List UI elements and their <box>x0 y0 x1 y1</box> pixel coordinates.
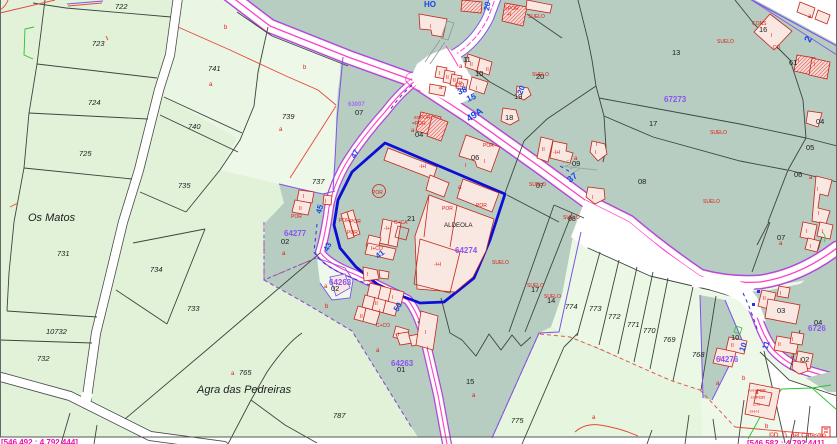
svg-text:SUELO: SUELO <box>717 39 734 45</box>
svg-text:SUELO: SUELO <box>528 14 545 20</box>
svg-text:725: 725 <box>79 149 92 158</box>
svg-text:C+CO: C+CO <box>376 323 390 329</box>
svg-text:I: I <box>303 194 304 200</box>
svg-text:I: I <box>325 199 326 205</box>
svg-text:I: I <box>595 150 596 156</box>
svg-text:02: 02 <box>281 237 289 246</box>
svg-text:765: 765 <box>239 368 252 377</box>
svg-text:POR: POR <box>291 214 302 220</box>
svg-text:64277: 64277 <box>284 229 307 238</box>
svg-text:I: I <box>596 142 597 148</box>
svg-text:POR: POR <box>476 203 487 209</box>
svg-text:SUELO: SUELO <box>527 283 544 289</box>
svg-text:737: 737 <box>312 177 325 186</box>
svg-text:61: 61 <box>789 58 797 67</box>
svg-text:HO: HO <box>424 0 436 9</box>
svg-text:63007: 63007 <box>348 102 365 108</box>
svg-text:[546.582 ; 4.792.441]: [546.582 ; 4.792.441] <box>747 439 824 444</box>
svg-text:I: I <box>398 332 399 338</box>
svg-text:04: 04 <box>415 130 423 139</box>
svg-text:64263: 64263 <box>391 359 414 368</box>
svg-text:21: 21 <box>407 214 415 223</box>
svg-text:I: I <box>392 295 393 301</box>
svg-text:-I+I: -I+I <box>553 150 560 156</box>
svg-text:POR: POR <box>339 218 350 224</box>
svg-text:Agra das Pedreiras: Agra das Pedreiras <box>196 384 292 396</box>
svg-text:67273: 67273 <box>664 95 687 104</box>
svg-text:SUELO: SUELO <box>703 199 720 205</box>
svg-text:772: 772 <box>608 312 621 321</box>
svg-text:05: 05 <box>806 143 814 152</box>
svg-text:C+I: C+I <box>753 402 760 407</box>
svg-text:I: I <box>425 330 426 336</box>
svg-text:II: II <box>299 206 302 212</box>
svg-text:-I+I: -I+I <box>419 164 426 170</box>
svg-text:+I+POR: +I+POR <box>750 395 765 400</box>
svg-text:CONS: CONS <box>752 21 767 27</box>
svg-text:II: II <box>486 67 489 73</box>
svg-text:724: 724 <box>88 98 101 107</box>
svg-text:I: I <box>818 211 819 217</box>
svg-text:+I: +I <box>507 12 511 18</box>
svg-text:03: 03 <box>777 306 785 315</box>
svg-text:II: II <box>542 147 545 153</box>
svg-text:Os Matos: Os Matos <box>28 212 76 224</box>
svg-text:I: I <box>792 337 793 343</box>
svg-text:731: 731 <box>57 249 70 258</box>
svg-text:I: I <box>822 229 823 235</box>
svg-text:740: 740 <box>188 122 201 131</box>
svg-text:06: 06 <box>471 153 479 162</box>
svg-text:I: I <box>476 86 477 92</box>
svg-text:II: II <box>763 296 766 302</box>
svg-text:I: I <box>814 62 815 68</box>
svg-text:POR: POR <box>483 143 494 149</box>
svg-text:II: II <box>360 314 363 320</box>
svg-text:I: I <box>817 187 818 193</box>
svg-text:10: 10 <box>731 333 739 342</box>
svg-text:I: I <box>379 309 380 315</box>
svg-text:I: I <box>771 33 772 39</box>
svg-text:734: 734 <box>150 265 163 274</box>
svg-text:I: I <box>367 272 368 278</box>
svg-text:739: 739 <box>282 112 295 121</box>
svg-text:II: II <box>375 301 378 307</box>
svg-text:I: I <box>780 291 781 297</box>
svg-text:SUELO: SUELO <box>563 215 580 221</box>
svg-text:II: II <box>731 343 734 349</box>
svg-text:II: II <box>446 75 449 81</box>
svg-text:04: 04 <box>816 117 824 126</box>
svg-text:C+CA: C+CA <box>394 220 408 226</box>
svg-text:©D. G. del Catastro: ©D. G. del Catastro <box>769 431 826 439</box>
svg-text:I: I <box>806 229 807 235</box>
svg-text:64276: 64276 <box>716 355 739 364</box>
svg-text:774: 774 <box>565 302 578 311</box>
svg-text:64274: 64274 <box>455 246 478 255</box>
svg-text:POR: POR <box>350 219 361 225</box>
svg-text:II: II <box>470 62 473 68</box>
svg-text:-CO: -CO <box>771 45 780 51</box>
svg-text:10732: 10732 <box>46 327 68 336</box>
svg-text:SUELO: SUELO <box>492 260 509 266</box>
svg-text:I: I <box>810 244 811 250</box>
svg-text:18: 18 <box>505 113 513 122</box>
svg-text:768: 768 <box>692 350 705 359</box>
svg-text:ALDEOLA: ALDEOLA <box>444 222 473 229</box>
svg-text:06: 06 <box>794 170 802 179</box>
svg-text:735: 735 <box>178 181 191 190</box>
svg-text:17: 17 <box>649 119 657 128</box>
svg-text:6726: 6726 <box>808 324 826 333</box>
svg-text:I: I <box>439 71 440 77</box>
svg-text:A+I+POR: A+I+POR <box>748 388 766 393</box>
svg-text:769: 769 <box>663 335 676 344</box>
svg-text:775: 775 <box>511 416 524 425</box>
svg-text:-I+I+I: -I+I+I <box>749 409 759 414</box>
svg-text:SUELO: SUELO <box>710 130 727 136</box>
svg-text:II: II <box>778 342 781 348</box>
svg-text:13: 13 <box>672 48 680 57</box>
svg-text:733: 733 <box>187 304 200 313</box>
svg-text:[546.492 ; 4.792.444]: [546.492 ; 4.792.444] <box>1 438 78 444</box>
svg-text:I: I <box>800 358 801 364</box>
svg-text:741: 741 <box>208 64 221 73</box>
svg-text:SUELO: SUELO <box>532 72 549 78</box>
svg-text:=POR: =POR <box>412 121 426 127</box>
svg-text:15: 15 <box>466 377 474 386</box>
svg-text:I: I <box>430 24 431 30</box>
svg-text:770: 770 <box>643 326 656 335</box>
svg-text:773: 773 <box>589 304 602 313</box>
svg-text:-I+I: -I+I <box>434 262 441 268</box>
svg-text:64263: 64263 <box>329 278 352 287</box>
svg-text:POR: POR <box>442 206 453 212</box>
svg-text:I: I <box>427 346 428 352</box>
svg-text:SUELO: SUELO <box>529 182 546 188</box>
svg-text:-I+I: -I+I <box>384 226 391 232</box>
svg-text:I: I <box>465 163 466 169</box>
svg-text:732: 732 <box>37 354 50 363</box>
svg-text:POR: POR <box>347 230 358 236</box>
svg-text:723: 723 <box>92 39 105 48</box>
svg-text:I: I <box>798 58 799 64</box>
svg-text:08: 08 <box>638 177 646 186</box>
svg-text:SUELO: SUELO <box>544 294 561 300</box>
svg-text:722: 722 <box>115 2 128 11</box>
svg-text:07: 07 <box>355 108 363 117</box>
svg-text:02: 02 <box>801 355 809 364</box>
svg-text:I: I <box>592 195 593 201</box>
svg-text:I: I <box>484 159 485 165</box>
svg-text:POR: POR <box>372 190 383 196</box>
svg-text:771: 771 <box>627 320 640 329</box>
svg-text:787: 787 <box>333 411 346 420</box>
svg-text:10: 10 <box>475 69 483 78</box>
